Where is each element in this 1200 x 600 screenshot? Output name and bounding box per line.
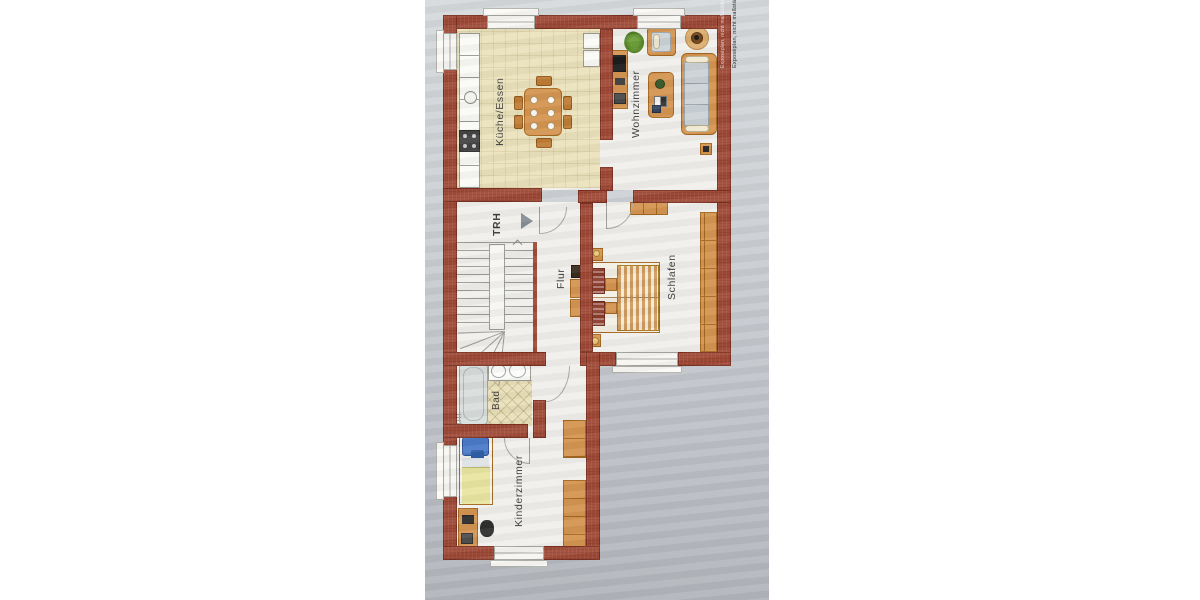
wall <box>443 188 542 202</box>
room-label-kids-room: Kinderzimmer <box>513 455 525 527</box>
wall <box>443 424 528 438</box>
wardrobe <box>700 212 717 352</box>
bedside-lamp <box>593 250 600 257</box>
washbasin <box>491 364 506 378</box>
room-label-stairwell: TRH <box>491 206 503 236</box>
table-decor <box>694 35 699 40</box>
kitchen-sink <box>464 91 477 104</box>
entrance-arrow-icon <box>521 213 533 229</box>
double-bed <box>585 262 660 333</box>
dining-table <box>524 88 562 136</box>
bathtub <box>459 362 488 426</box>
wall <box>443 352 546 366</box>
coffee-table <box>648 72 674 118</box>
dining-chair <box>514 96 523 110</box>
kids-cabinet <box>563 480 586 550</box>
kitchen-counter <box>459 33 480 188</box>
dining-chair <box>563 96 572 110</box>
wall <box>600 167 613 191</box>
dining-chair <box>563 115 572 129</box>
door-arc-bathroom <box>546 366 570 402</box>
wall-watermark-text: Exposéplan, nicht maßstäblich <box>720 28 726 68</box>
wall <box>533 400 546 438</box>
window <box>487 15 535 29</box>
desk-chair <box>480 520 494 537</box>
tv-desk <box>611 50 628 109</box>
door-arc-bedroom <box>607 203 633 229</box>
room-label-bedroom: Schlafen <box>666 252 678 300</box>
wall <box>678 352 731 366</box>
sofa <box>681 53 717 135</box>
dining-chair <box>536 76 552 86</box>
wall <box>578 190 607 203</box>
wall <box>600 29 613 140</box>
plan-note-text: Exposéplan, nicht maßstäblich <box>732 24 738 68</box>
room-label-living: Wohnzimmer <box>630 76 642 138</box>
window <box>637 15 681 29</box>
bedroom-dresser <box>630 202 668 215</box>
room-label-hallway: Flur <box>555 263 567 289</box>
kitchen-tall-unit <box>583 50 600 67</box>
kitchen-stove <box>459 130 480 152</box>
door-arc-entrance <box>540 207 567 234</box>
window <box>494 546 544 560</box>
door-leaf <box>539 207 540 234</box>
window <box>616 352 678 366</box>
window-sill <box>612 366 682 373</box>
window <box>443 445 457 497</box>
window-sill <box>490 560 548 567</box>
window <box>443 33 457 70</box>
kids-bed <box>459 433 493 505</box>
armchair <box>647 27 676 56</box>
side-table <box>700 143 712 155</box>
wall <box>580 203 593 352</box>
kids-desk <box>458 508 478 548</box>
dining-chair <box>514 115 523 129</box>
kitchen-tall-unit <box>583 33 600 49</box>
wall <box>533 242 537 352</box>
staircase-stringer <box>489 244 505 330</box>
room-label-bathroom: Bad <box>491 386 502 410</box>
room-label-kitchen-dining: Küche/Essen <box>494 80 506 146</box>
wall <box>586 352 600 560</box>
screenshot-root: Küche/Essen Wohnzimmer TRH Flur Schlafen… <box>0 0 1200 600</box>
door-leaf <box>529 438 530 464</box>
dining-chair <box>536 138 552 148</box>
kids-cabinet <box>563 420 586 458</box>
door-leaf <box>606 203 607 229</box>
wall <box>633 190 731 203</box>
